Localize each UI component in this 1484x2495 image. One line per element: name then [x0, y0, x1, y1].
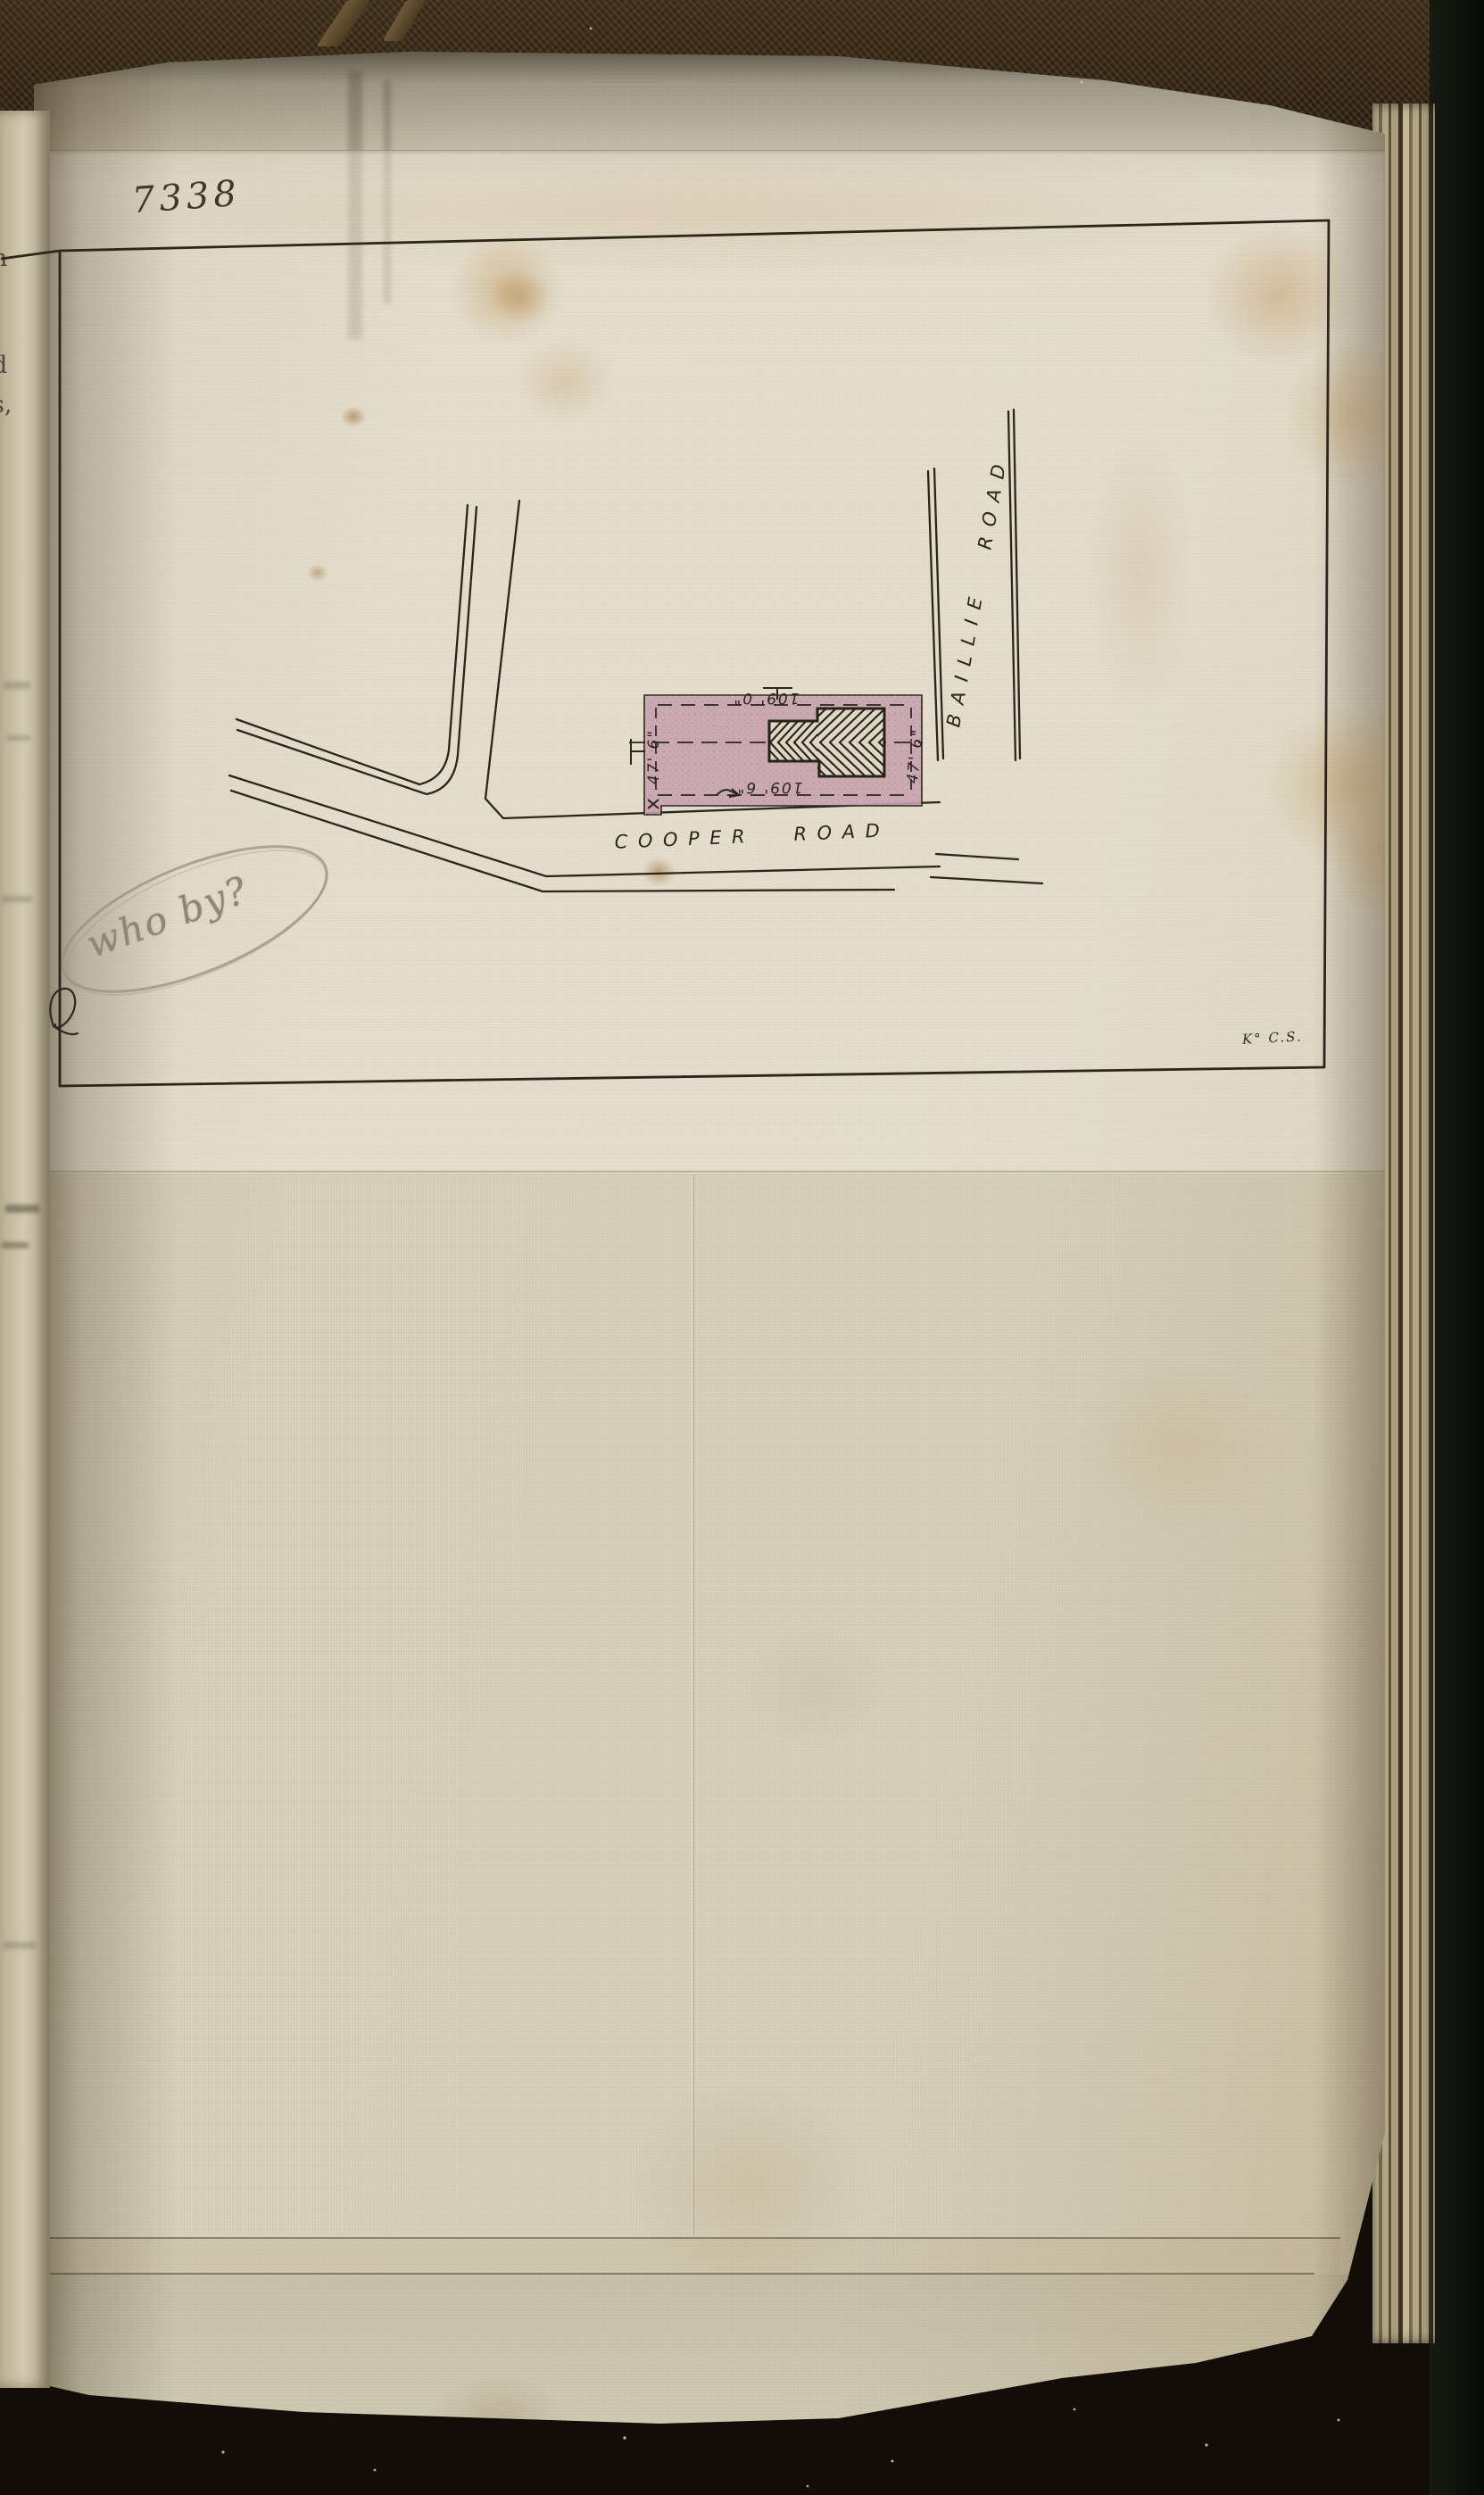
dimension-bottom: 109' 6" — [714, 778, 825, 796]
plan-frame — [1, 220, 1329, 1086]
catalog-number: 7338 — [131, 173, 243, 221]
site-plan-drawing — [0, 0, 1484, 2495]
dust-specks — [221, 28, 1339, 2488]
scanned-page: n , d s, — [0, 0, 1484, 2495]
dimension-left: 47' 6" — [645, 701, 663, 812]
dimension-top: 109' 0" — [710, 689, 821, 707]
ink-flourish — [50, 989, 78, 1034]
surveyor-corner-mark: K° C.S. — [1242, 1028, 1304, 1048]
